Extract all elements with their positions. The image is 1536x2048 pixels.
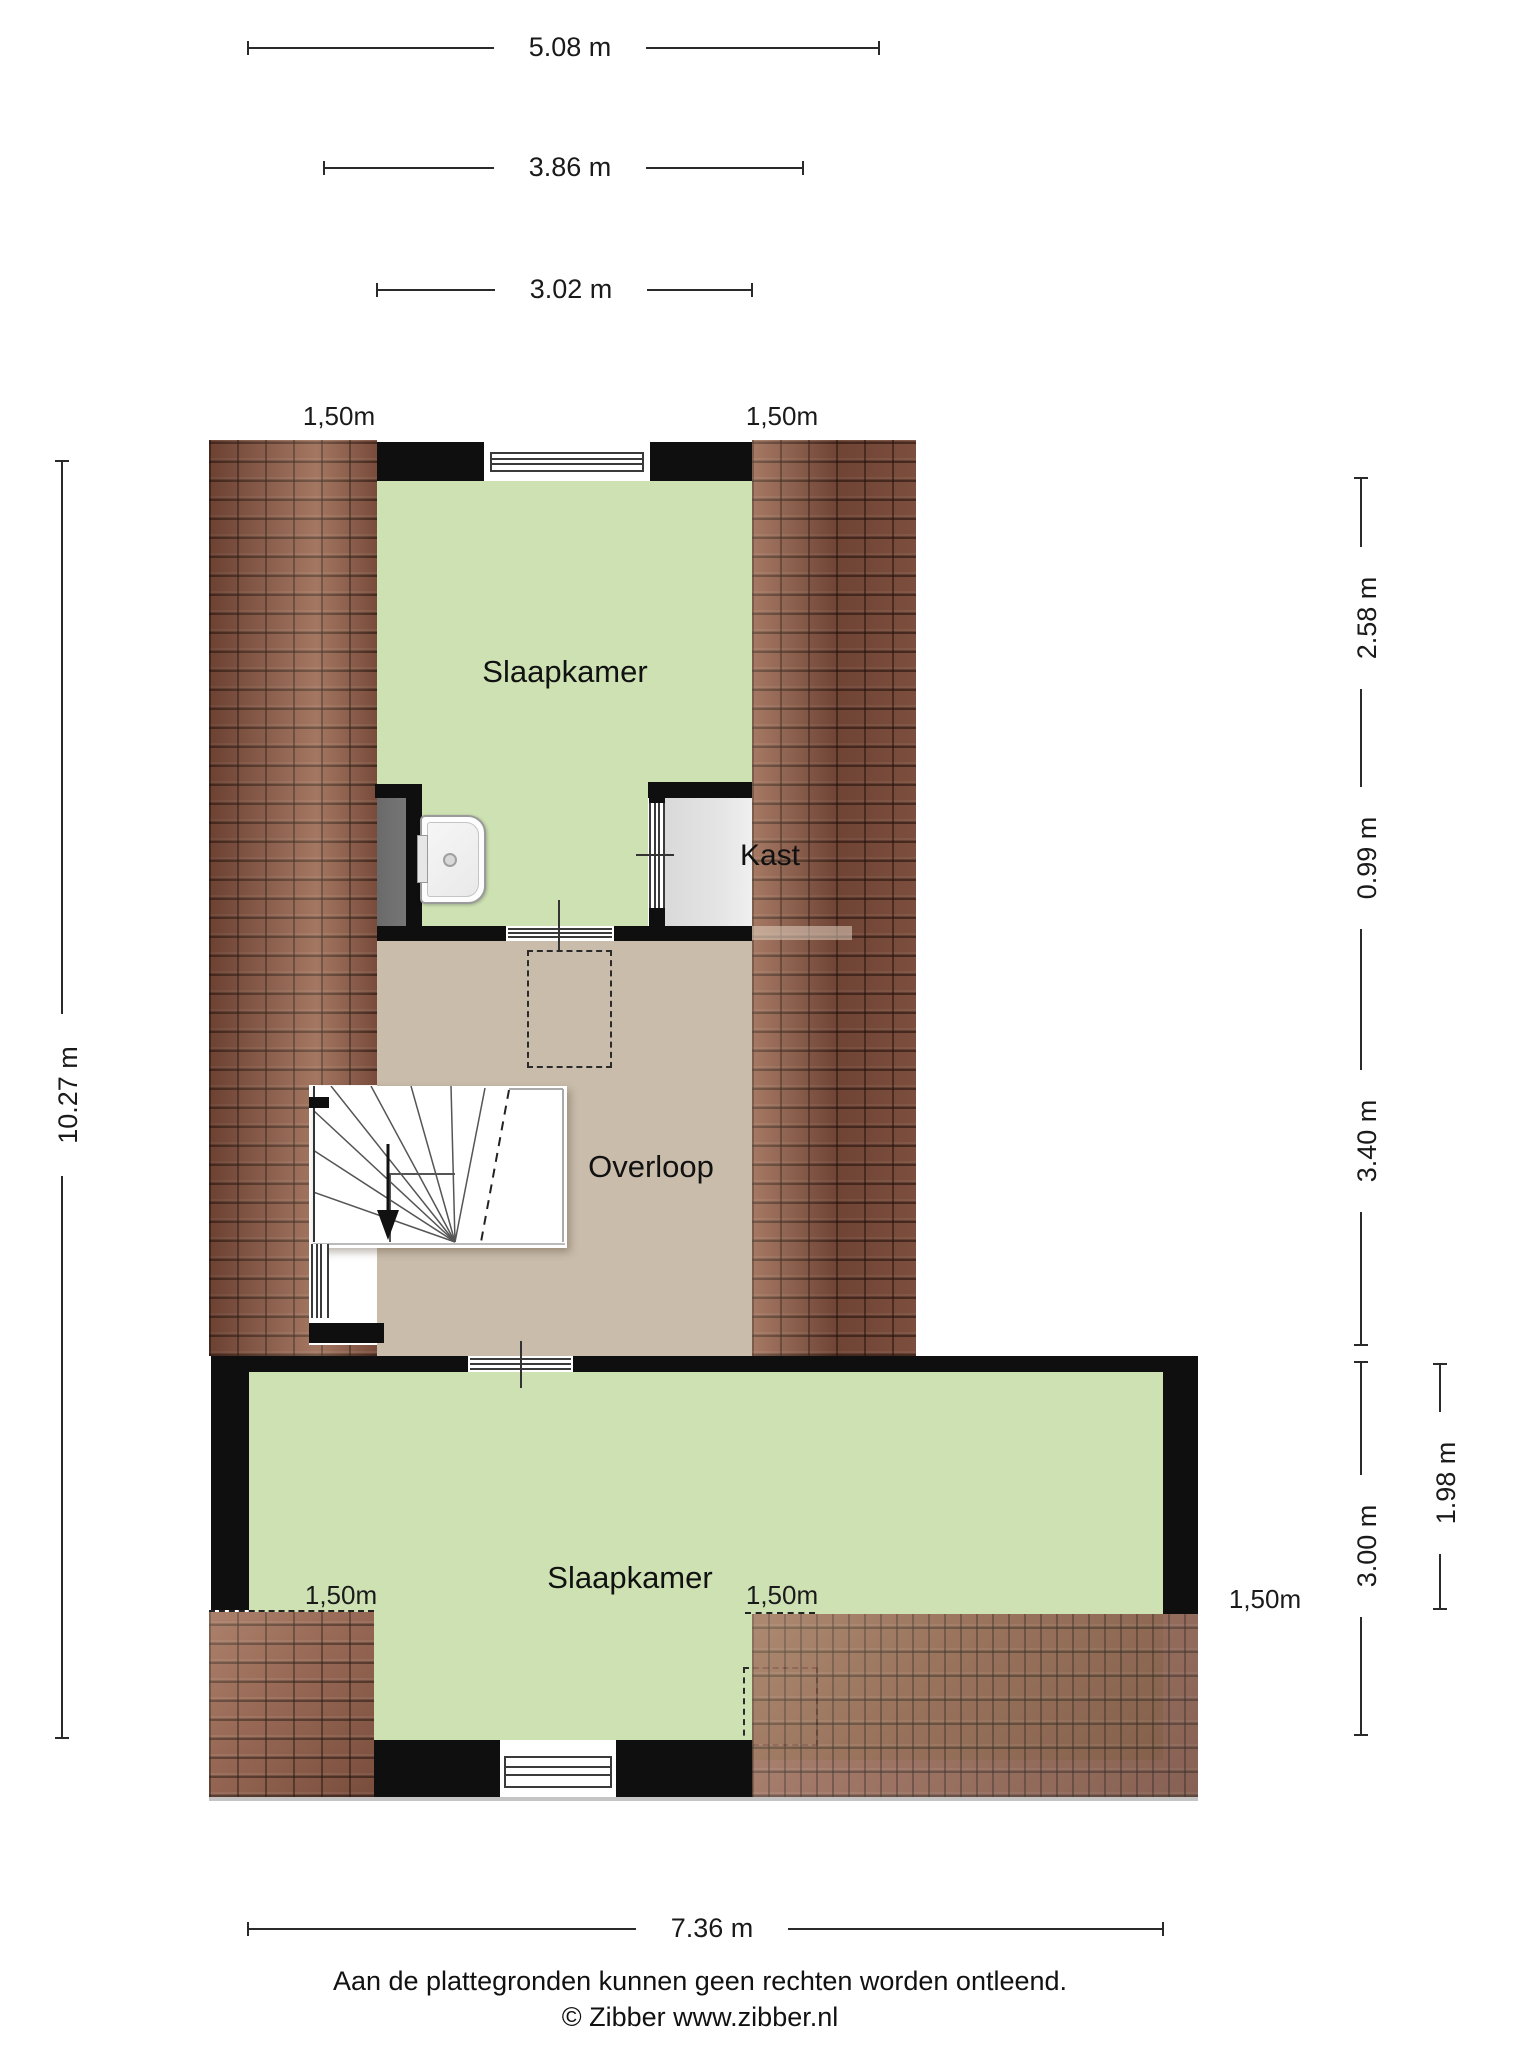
bedroom2-wall-bottom-right	[616, 1740, 753, 1797]
bedroom2-wall-top-left	[211, 1356, 468, 1372]
closet-door-jamb-bottom	[649, 908, 665, 926]
dim-top-5-08-label: 5.08 m	[494, 33, 646, 61]
wall-band-bottom-right	[614, 926, 752, 941]
footer-copyright: © Zibber www.zibber.nl	[68, 2002, 1332, 2032]
knee-label-bottom-right: 1,50m	[1210, 1586, 1320, 1613]
room-label-bedroom-bottom: Slaapkamer	[520, 1562, 740, 1594]
window-band-centerline	[558, 900, 560, 952]
wall-top-left	[377, 442, 484, 481]
dim-bottom-7-36-label: 7.36 m	[636, 1914, 788, 1942]
wall-top-right	[650, 442, 752, 481]
dormer-roof-left	[209, 1612, 374, 1797]
footer-disclaimer: Aan de plattegronden kunnen geen rechten…	[68, 1966, 1332, 1996]
bedroom2-wall-top-right	[573, 1356, 1198, 1372]
dormer-left-dashed-edge	[209, 1610, 374, 1612]
floorplan-page: 5.08 m 3.86 m 3.02 m 10.27 m 2.58 m 0.99…	[0, 0, 1536, 2048]
roof-strip-right	[752, 440, 916, 1356]
knee-label-bottom-left: 1,50m	[286, 1582, 396, 1609]
eave-shadow-line	[209, 1797, 1198, 1801]
dim-top-3-86-label: 3.86 m	[494, 153, 646, 181]
dormer-roof-right	[752, 1614, 1198, 1797]
shower-area-floor	[377, 798, 408, 926]
knee-label-top-right: 1,50m	[727, 403, 837, 430]
bedroom2-wall-bottom-left	[374, 1740, 500, 1797]
stair-wall-stub-top	[309, 1097, 329, 1108]
wall-band-bottom-left	[377, 926, 506, 941]
bedroom2-wall-right	[1163, 1372, 1198, 1614]
dim-left-10-27-label: 10.27 m	[54, 1014, 82, 1176]
window-bedroom2-centerline	[520, 1341, 522, 1388]
dormer-right-dashed-edge	[745, 1612, 815, 1614]
shower-drain-icon	[443, 853, 457, 867]
dim-right-0-99-label: 0.99 m	[1353, 787, 1381, 929]
shower-tray-icon	[420, 815, 486, 904]
room-label-landing: Overloop	[541, 1151, 761, 1183]
knee-label-bottom-mid: 1,50m	[727, 1582, 837, 1609]
shower-faucet-icon	[417, 835, 428, 883]
bedroom2-wall-left	[211, 1372, 249, 1610]
dim-top-3-02-label: 3.02 m	[495, 275, 647, 303]
bedroom-top-floor	[377, 481, 752, 798]
stair-opening-dashed	[527, 950, 612, 1068]
dim-right-2-58-label: 2.58 m	[1353, 547, 1381, 689]
staircase	[313, 1086, 567, 1248]
dim-right-3-00-label: 3.00 m	[1353, 1475, 1381, 1617]
stair-wall-stub-bottom	[309, 1323, 384, 1343]
closet-wall-top	[648, 782, 752, 798]
window-top-bedroom	[484, 443, 650, 480]
window-bedroom2-bottom	[500, 1740, 616, 1797]
dim-right-1-98-label: 1.98 m	[1432, 1412, 1460, 1554]
room-label-bedroom-top: Slaapkamer	[455, 656, 675, 688]
window-band	[506, 926, 614, 941]
dim-right-3-40-label: 3.40 m	[1353, 1070, 1381, 1212]
window-landing-left	[311, 1244, 329, 1318]
roof-wall-overlay-band	[752, 926, 852, 940]
room-label-closet: Kast	[660, 840, 880, 872]
knee-label-top-left: 1,50m	[284, 403, 394, 430]
